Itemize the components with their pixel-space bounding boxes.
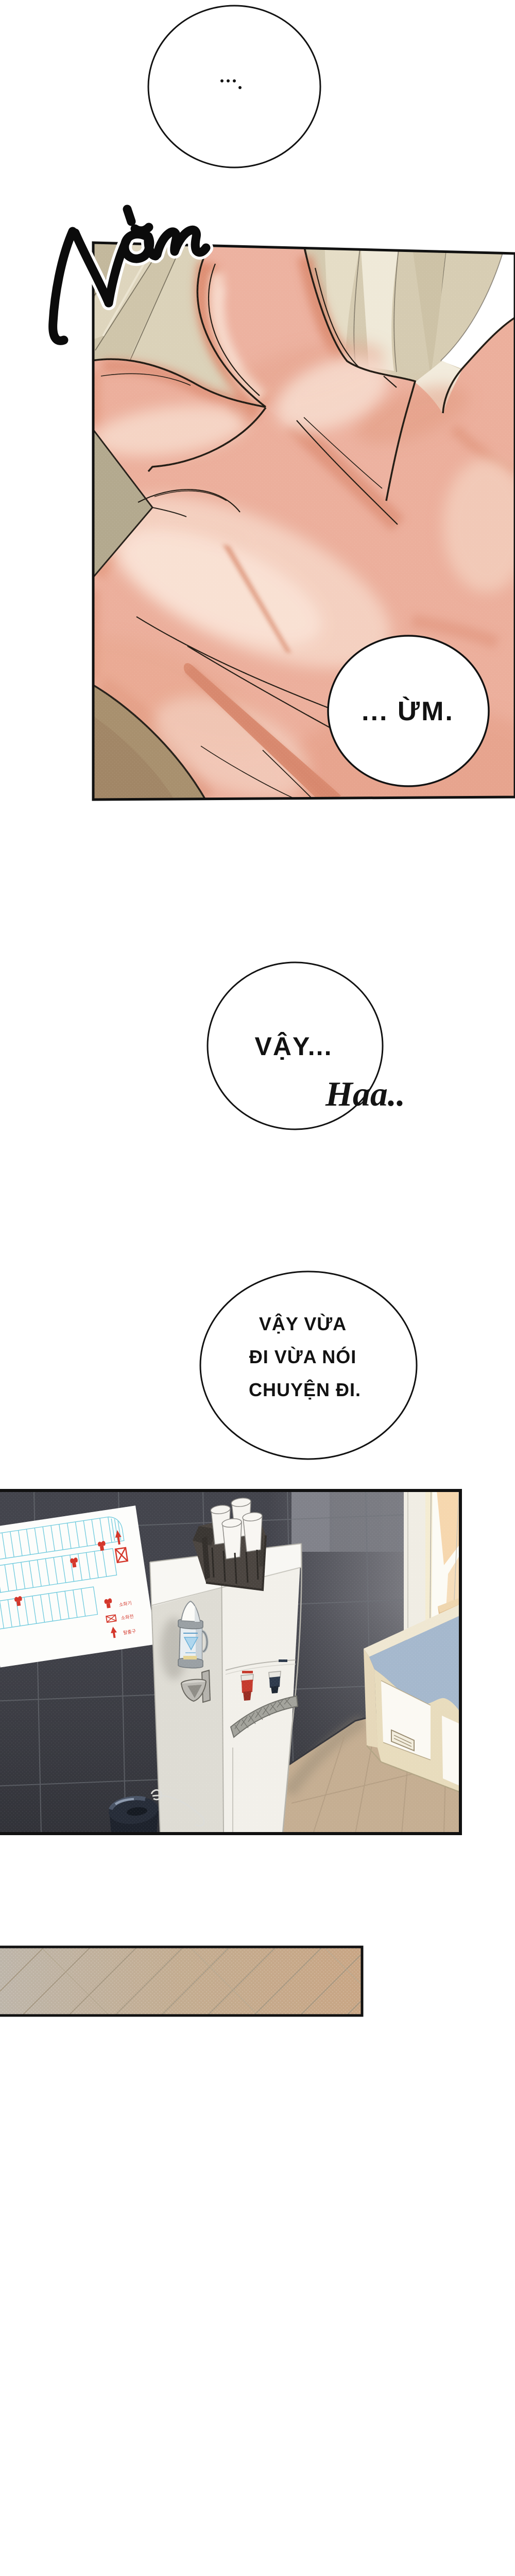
svg-text:VẬY VỪA: VẬY VỪA: [259, 1313, 347, 1334]
svg-text:... ỪM.: ... ỪM.: [362, 697, 454, 726]
svg-text:ĐI VỪA NÓI: ĐI VỪA NÓI: [249, 1346, 357, 1367]
svg-text:Haa..: Haa..: [325, 1074, 405, 1113]
svg-text:VẬY...: VẬY...: [255, 1032, 333, 1061]
svg-text:CHUYỆN ĐI.: CHUYỆN ĐI.: [249, 1379, 361, 1400]
